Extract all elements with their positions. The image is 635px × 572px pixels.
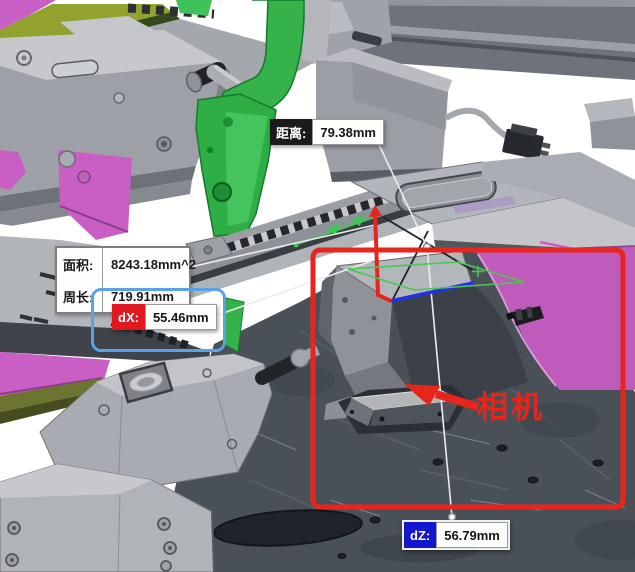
dz-measurement-label[interactable]: dZ: 56.79mm [402, 520, 510, 550]
dx-value: 55.46mm [145, 304, 217, 330]
dz-value: 56.79mm [436, 522, 508, 548]
distance-badge: 距离: [270, 119, 312, 145]
camera-annotation-text: 相机 [477, 382, 545, 427]
cad-viewport[interactable]: 距离: 79.38mm 面积: 8243.18mm^2 周长: 719.91mm… [0, 0, 635, 572]
dx-badge: dX: [112, 304, 145, 330]
distance-value: 79.38mm [312, 119, 384, 145]
distance-measurement-label[interactable]: 距离: 79.38mm [270, 119, 384, 145]
area-label: 面积: [57, 248, 103, 280]
dx-measurement-label[interactable]: dX: 55.46mm [112, 304, 217, 330]
area-value: 8243.18mm^2 [103, 248, 196, 280]
dz-badge: dZ: [404, 522, 436, 548]
